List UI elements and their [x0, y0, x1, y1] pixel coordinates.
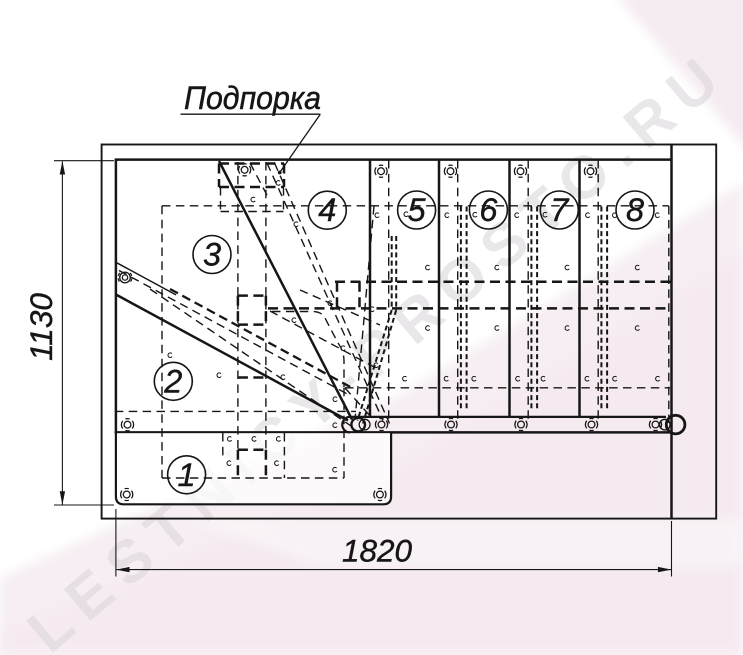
svg-text:6: 6: [479, 192, 498, 228]
svg-text:2: 2: [163, 363, 182, 399]
svg-text:5: 5: [408, 192, 427, 228]
svg-text:1820: 1820: [342, 533, 413, 569]
svg-text:3: 3: [203, 237, 221, 273]
svg-text:4: 4: [318, 192, 336, 228]
svg-text:8: 8: [626, 192, 644, 228]
svg-text:1130: 1130: [23, 293, 59, 361]
svg-text:1: 1: [178, 457, 196, 493]
svg-text:Подпорка: Подпорка: [184, 80, 321, 116]
svg-text:7: 7: [550, 192, 570, 228]
